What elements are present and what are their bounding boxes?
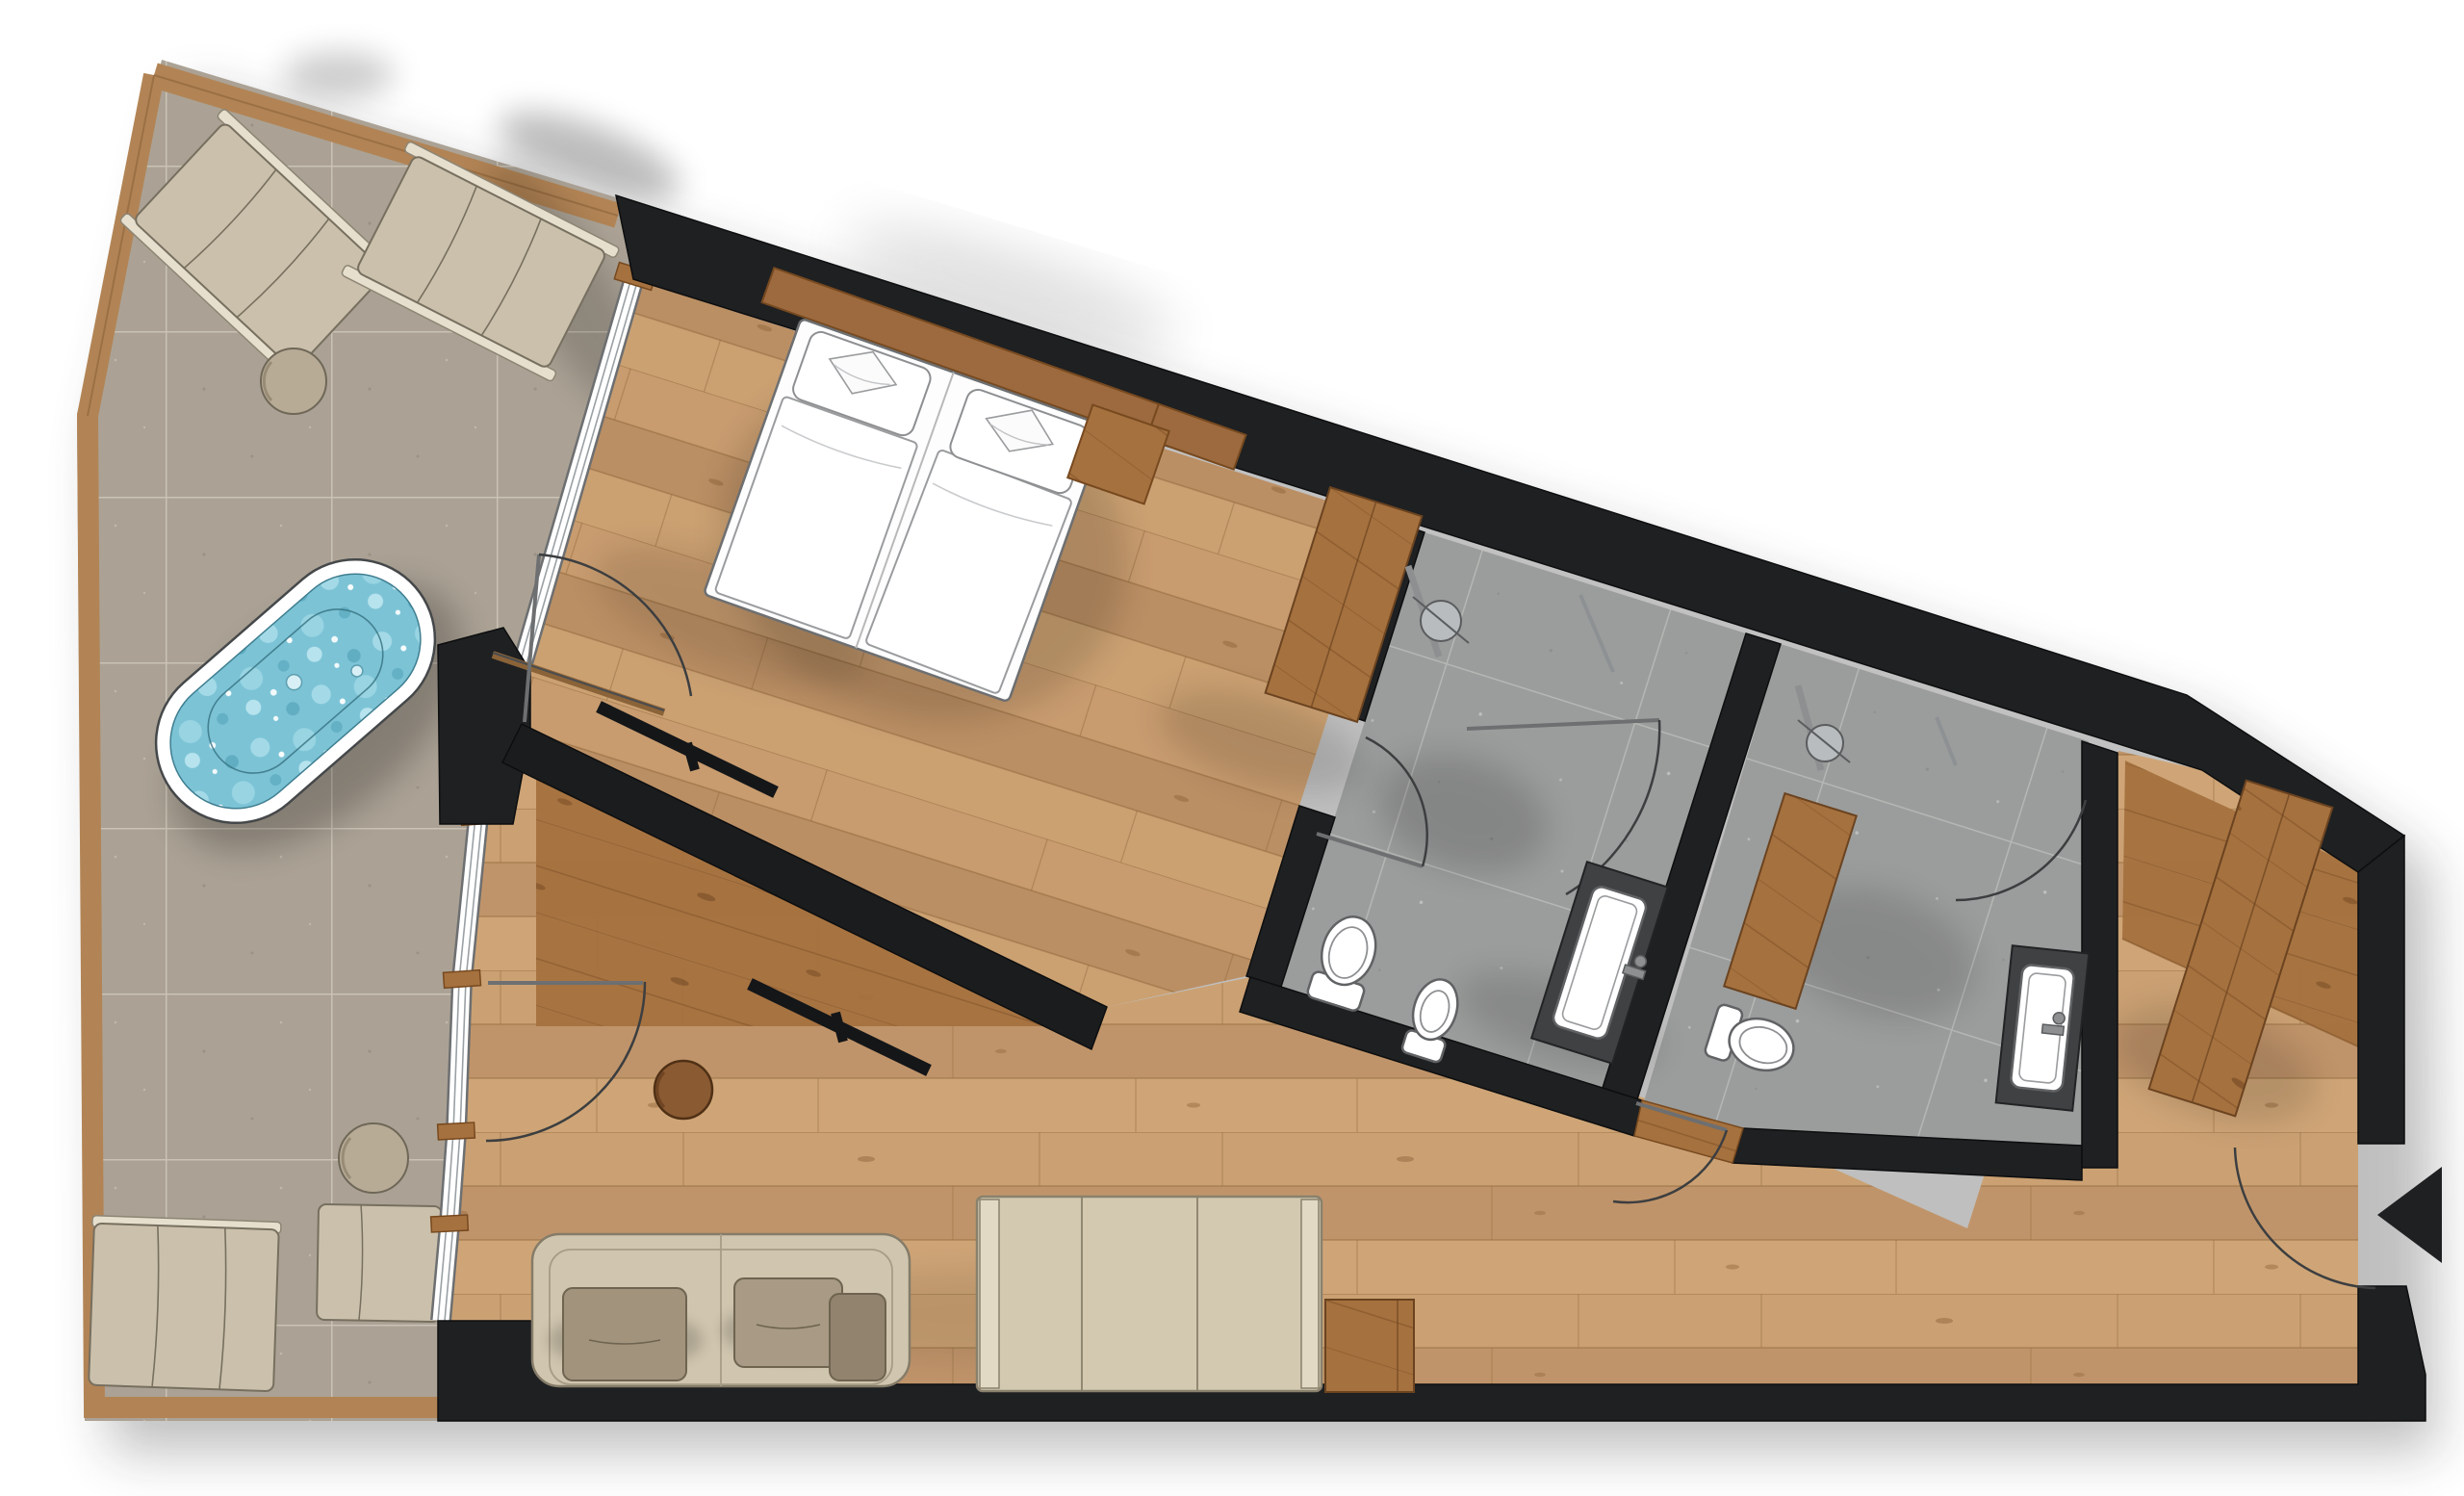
floor-plan-canvas: [0, 0, 2464, 1496]
round-side-table: [339, 1123, 408, 1193]
side-table-wood: [1325, 1300, 1414, 1392]
sofa-cushion: [830, 1294, 885, 1380]
threshold: [443, 970, 480, 989]
terrace-ottoman: [317, 1204, 442, 1322]
ottoman-cushion: [317, 1204, 442, 1322]
daybed: [977, 1197, 1322, 1391]
threshold: [431, 1215, 469, 1232]
daybed-arm: [1301, 1199, 1319, 1388]
sofa-cushion: [734, 1278, 842, 1367]
lounger-cushion: [89, 1224, 279, 1392]
fireplace-column: [438, 628, 530, 824]
wall-right-upper: [2358, 836, 2404, 1144]
shadow-blob: [283, 52, 395, 98]
round-coffee-table: [654, 1061, 712, 1119]
daybed-arm: [980, 1199, 999, 1388]
daybed-base: [977, 1197, 1322, 1391]
round-side-table: [261, 348, 326, 414]
faucet-icon: [2041, 1024, 2064, 1035]
vanity-sink: [1996, 945, 2090, 1110]
sofa: [532, 1234, 910, 1386]
faucet-knob: [2053, 1012, 2066, 1024]
threshold: [438, 1122, 475, 1140]
sofa-cushion: [563, 1288, 686, 1380]
lounge-bed: [87, 1216, 281, 1392]
